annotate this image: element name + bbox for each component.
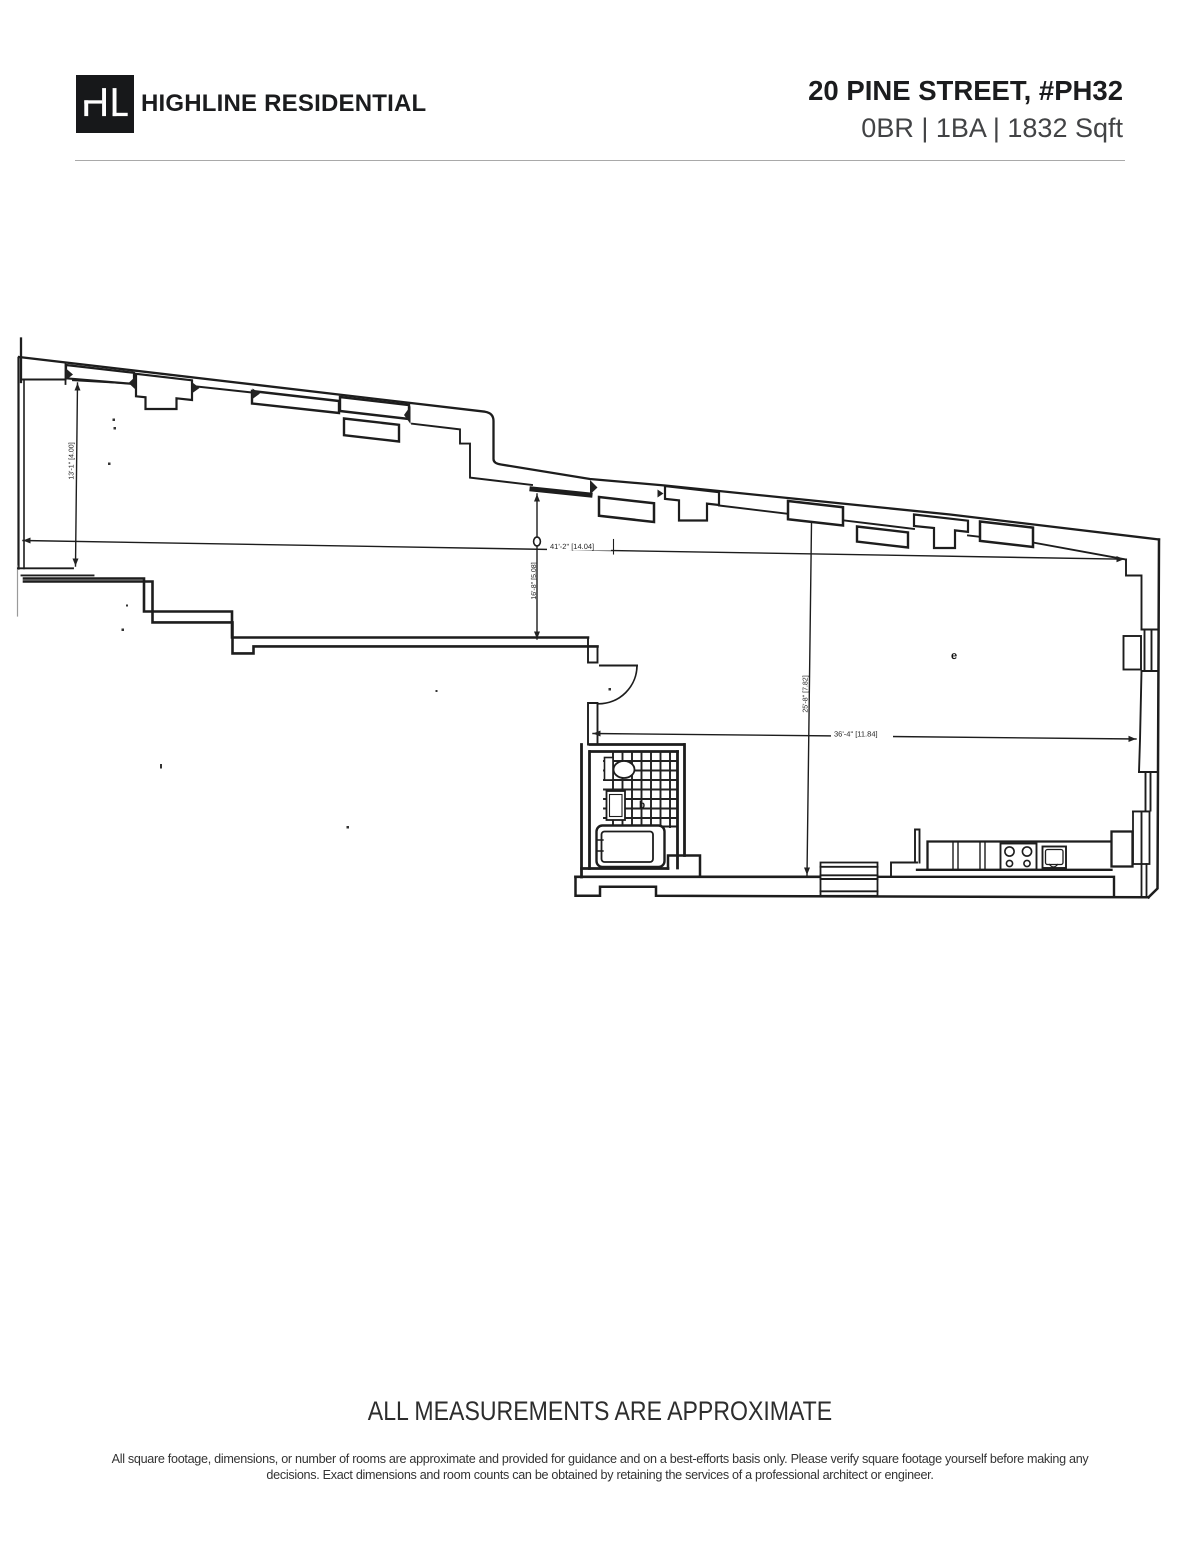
svg-text:e: e bbox=[951, 650, 957, 662]
svg-text:36'-4" [11.84]: 36'-4" [11.84] bbox=[834, 730, 878, 739]
svg-text:25'-8" [7.82]: 25'-8" [7.82] bbox=[802, 675, 810, 712]
svg-text:41'-2" [14.04]: 41'-2" [14.04] bbox=[550, 542, 594, 551]
svg-text:13'-1" [4.00]: 13'-1" [4.00] bbox=[68, 442, 76, 479]
svg-text:b: b bbox=[639, 800, 645, 811]
svg-text:16'-8" [5.08]: 16'-8" [5.08] bbox=[530, 562, 538, 599]
